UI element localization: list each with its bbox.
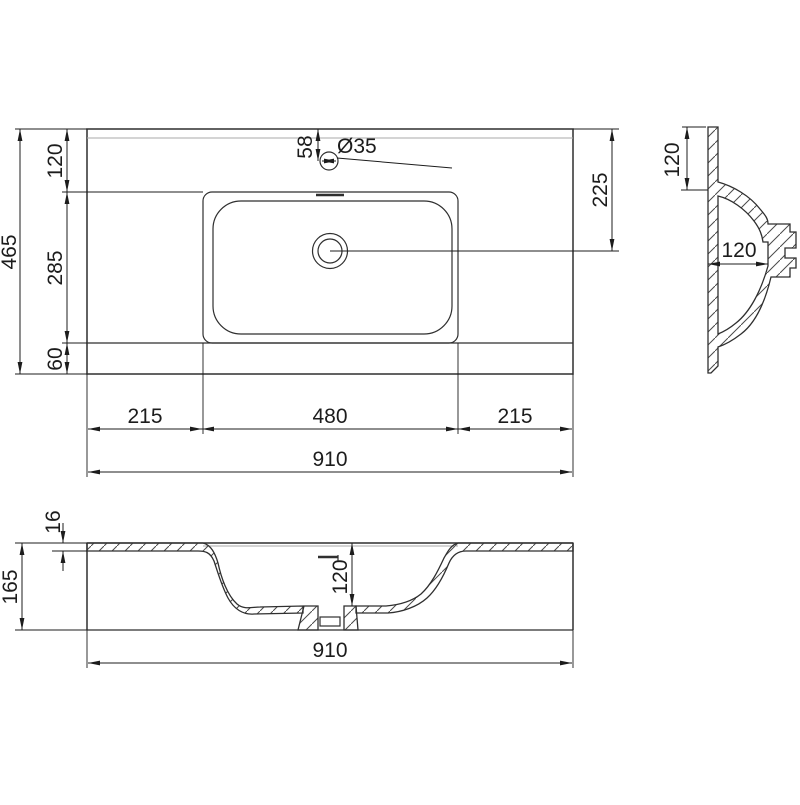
side-view: 120 120 [661,127,796,373]
basin-inner-outline [213,201,452,334]
washbasin-technical-drawing: 465 120 285 60 58 Ø35 225 215 480 215 91… [0,0,800,800]
drain-opening [320,617,340,626]
front-extension-lines [15,543,573,668]
plan-basin-to-front-label: 60 [44,347,67,370]
front-right-slab-and-wall [356,543,573,613]
front-dimensions: 16 165 120 910 [0,510,573,668]
faucet-diameter-leader [337,158,452,168]
plan-outlines [87,129,619,374]
front-top-thickness-label: 16 [42,510,65,533]
plan-dimensions: 465 120 285 60 58 Ø35 225 215 480 215 91… [0,129,619,477]
plan-basin-width-label: 480 [312,405,347,428]
front-left-slab-and-wall [87,543,303,614]
plan-basin-cutout-depth-label: 285 [44,250,67,285]
plan-faucet-offset-label: 58 [294,135,317,158]
side-bowl-depth-label: 120 [721,239,756,262]
front-section-view: 16 165 120 910 [0,510,573,668]
front-overall-height-label: 165 [0,569,22,604]
plan-back-to-basin-label: 120 [44,143,67,178]
plan-overall-depth-label: 465 [0,234,21,269]
side-ledge-height-label: 120 [661,142,684,177]
plan-view: 465 120 285 60 58 Ø35 225 215 480 215 91… [0,129,619,477]
drawing-canvas: 465 120 285 60 58 Ø35 225 215 480 215 91… [0,0,800,800]
plan-faucet-diameter-label: Ø35 [337,135,377,158]
basin-cutout-outline [203,192,458,343]
plan-overall-width-label: 910 [312,448,347,471]
plan-left-margin-label: 215 [127,405,162,428]
plan-drain-from-back-label: 225 [589,172,612,207]
front-overall-width-label: 910 [312,639,347,662]
plan-right-margin-label: 215 [497,405,532,428]
drain-boss-right-block [344,606,358,630]
front-bowl-depth-label: 120 [329,559,352,594]
